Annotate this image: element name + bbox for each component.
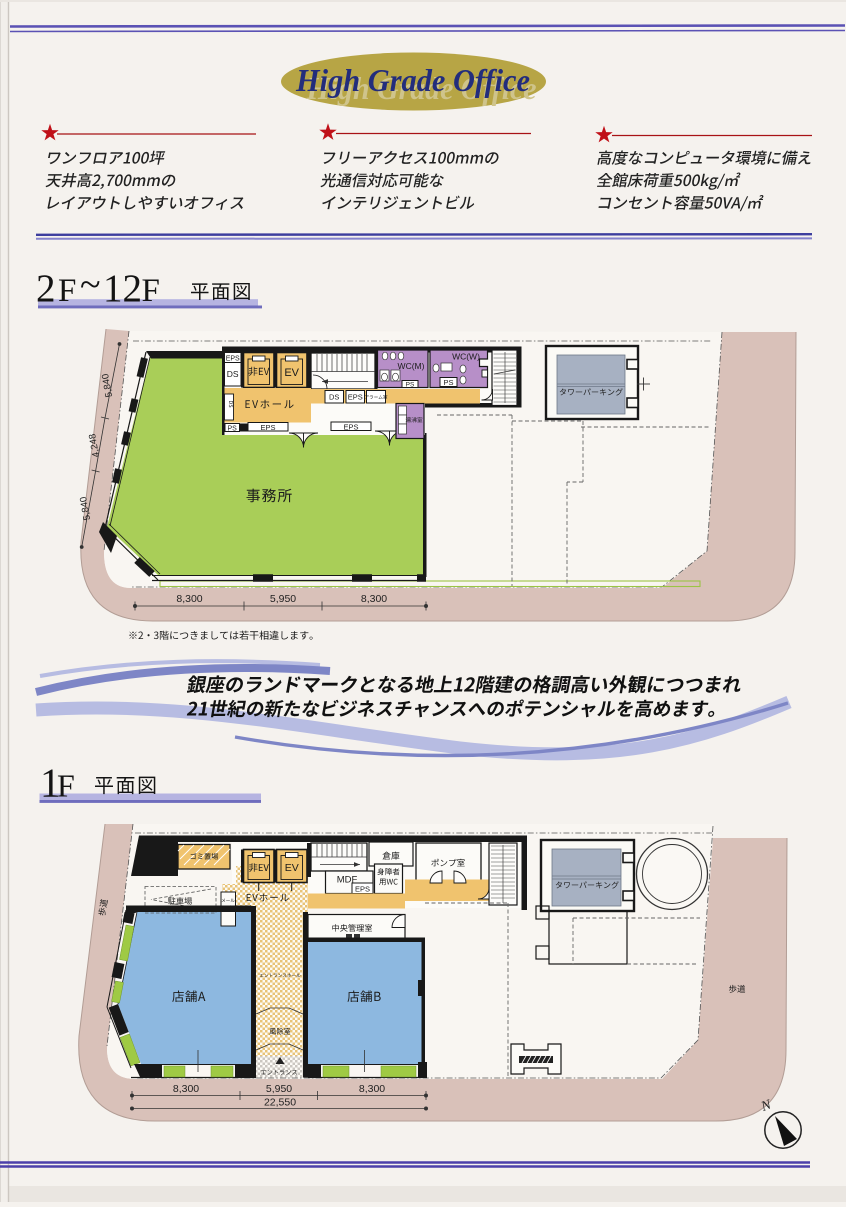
svg-text:WC(W): WC(W) xyxy=(452,352,480,362)
svg-text:DS: DS xyxy=(227,369,239,379)
svg-text:EPS: EPS xyxy=(355,885,370,894)
svg-text:EV: EV xyxy=(284,367,299,379)
svg-text:8,300: 8,300 xyxy=(173,1083,199,1095)
svg-text:DS: DS xyxy=(329,393,339,402)
svg-text:8,300: 8,300 xyxy=(361,593,387,605)
svg-text:8,300: 8,300 xyxy=(176,593,202,605)
svg-text:5,950: 5,950 xyxy=(266,1083,292,1095)
svg-text:EPS: EPS xyxy=(226,355,240,362)
svg-text:PS: PS xyxy=(228,425,238,432)
svg-text:PS: PS xyxy=(443,378,453,387)
svg-text:8,300: 8,300 xyxy=(359,1083,385,1095)
svg-text:EV: EV xyxy=(285,862,299,874)
svg-text:2F~12F: 2F~12F xyxy=(36,264,160,310)
svg-text:22,550: 22,550 xyxy=(264,1097,296,1109)
svg-text:EPS: EPS xyxy=(348,393,363,402)
svg-text:5,950: 5,950 xyxy=(270,593,296,605)
svg-text:PS: PS xyxy=(406,382,415,389)
svg-text:WC(M): WC(M) xyxy=(398,361,425,371)
svg-text:EPS: EPS xyxy=(260,423,275,432)
svg-text:High Grade Office: High Grade Office xyxy=(295,62,530,98)
svg-text:EPS: EPS xyxy=(343,422,358,431)
